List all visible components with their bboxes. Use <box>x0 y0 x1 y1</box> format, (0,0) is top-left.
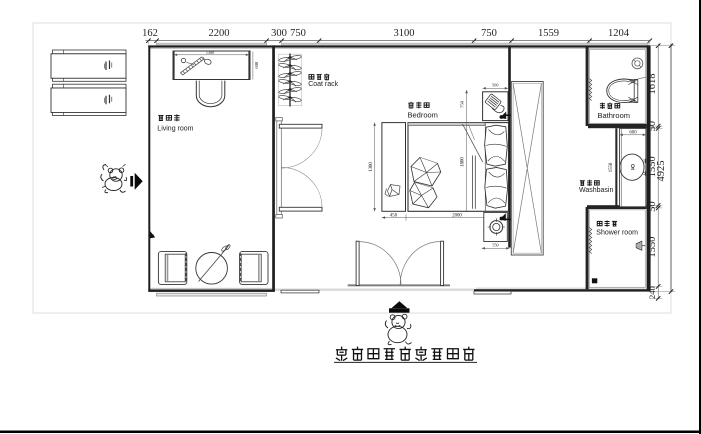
svg-text:550: 550 <box>492 242 498 247</box>
svg-text:1204: 1204 <box>608 28 630 39</box>
svg-text:750: 750 <box>290 28 306 39</box>
svg-text:500: 500 <box>492 83 498 88</box>
svg-text:3100: 3100 <box>394 28 415 39</box>
svg-text:Bathroom: Bathroom <box>598 111 631 120</box>
svg-text:Washbasin: Washbasin <box>579 187 613 194</box>
svg-text:750: 750 <box>481 28 497 39</box>
svg-text:2200: 2200 <box>209 28 230 39</box>
svg-text:750: 750 <box>460 100 465 108</box>
svg-text:1550: 1550 <box>609 162 614 172</box>
svg-text:162: 162 <box>142 28 158 39</box>
svg-text:2000: 2000 <box>452 213 462 218</box>
svg-text:Living room: Living room <box>157 125 193 132</box>
svg-text:600: 600 <box>629 130 637 135</box>
svg-text:Shower room: Shower room <box>596 229 638 236</box>
svg-text:450: 450 <box>390 213 398 218</box>
svg-text:Bedroom: Bedroom <box>408 110 438 119</box>
svg-text:1300: 1300 <box>369 162 374 172</box>
svg-text:1300: 1300 <box>206 50 214 55</box>
svg-text:600: 600 <box>254 61 259 69</box>
svg-text:1559: 1559 <box>538 28 559 39</box>
svg-text:300: 300 <box>271 28 287 39</box>
svg-text:1800: 1800 <box>460 157 465 167</box>
svg-text:4925: 4925 <box>656 161 667 182</box>
svg-text:Coat rack: Coat rack <box>308 81 338 88</box>
